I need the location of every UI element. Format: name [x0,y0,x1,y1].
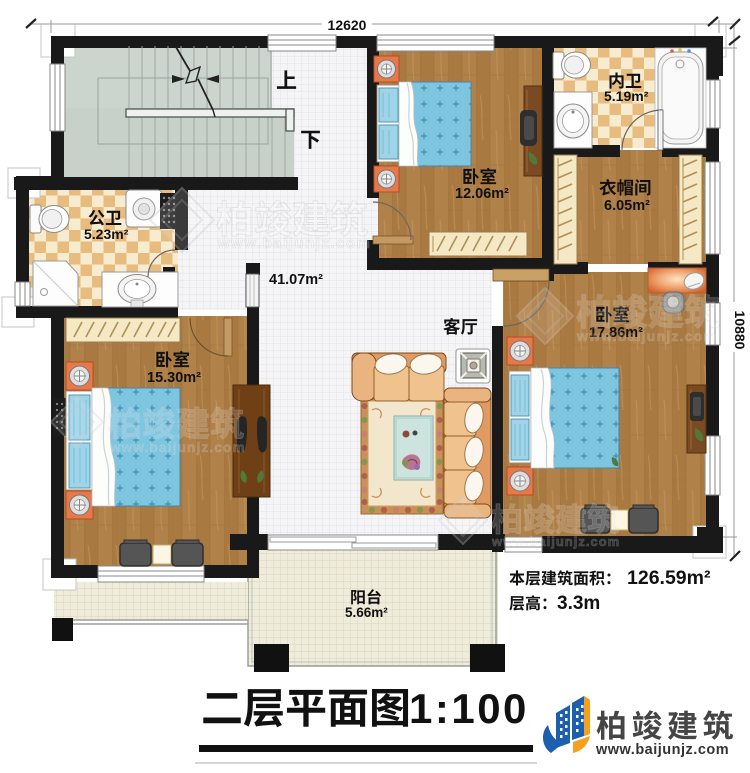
svg-text:www.baijunjz.com: www.baijunjz.com [595,742,729,758]
svg-text:www.baijunjz.com: www.baijunjz.com [217,235,371,252]
svg-text:3.3m: 3.3m [557,593,600,614]
svg-text:www.baijunjz.com: www.baijunjz.com [109,440,246,455]
svg-text:5.23m²: 5.23m² [84,226,129,242]
svg-text:5.66m²: 5.66m² [345,605,388,620]
svg-text:5.19m²: 5.19m² [604,88,649,104]
svg-text:12.06m²: 12.06m² [455,186,509,202]
svg-text:www.baijunjz.com: www.baijunjz.com [576,328,717,344]
svg-text:126.59m²: 126.59m² [627,567,711,589]
svg-text:www.baijunjz.com: www.baijunjz.com [491,534,620,549]
svg-text:10880: 10880 [732,311,748,350]
svg-text:12620: 12620 [328,17,367,33]
svg-text:41.07m²: 41.07m² [269,272,323,288]
svg-text:15.30m²: 15.30m² [147,370,201,386]
svg-text:6.05m²: 6.05m² [604,198,650,214]
svg-text:1:100: 1:100 [409,685,529,732]
